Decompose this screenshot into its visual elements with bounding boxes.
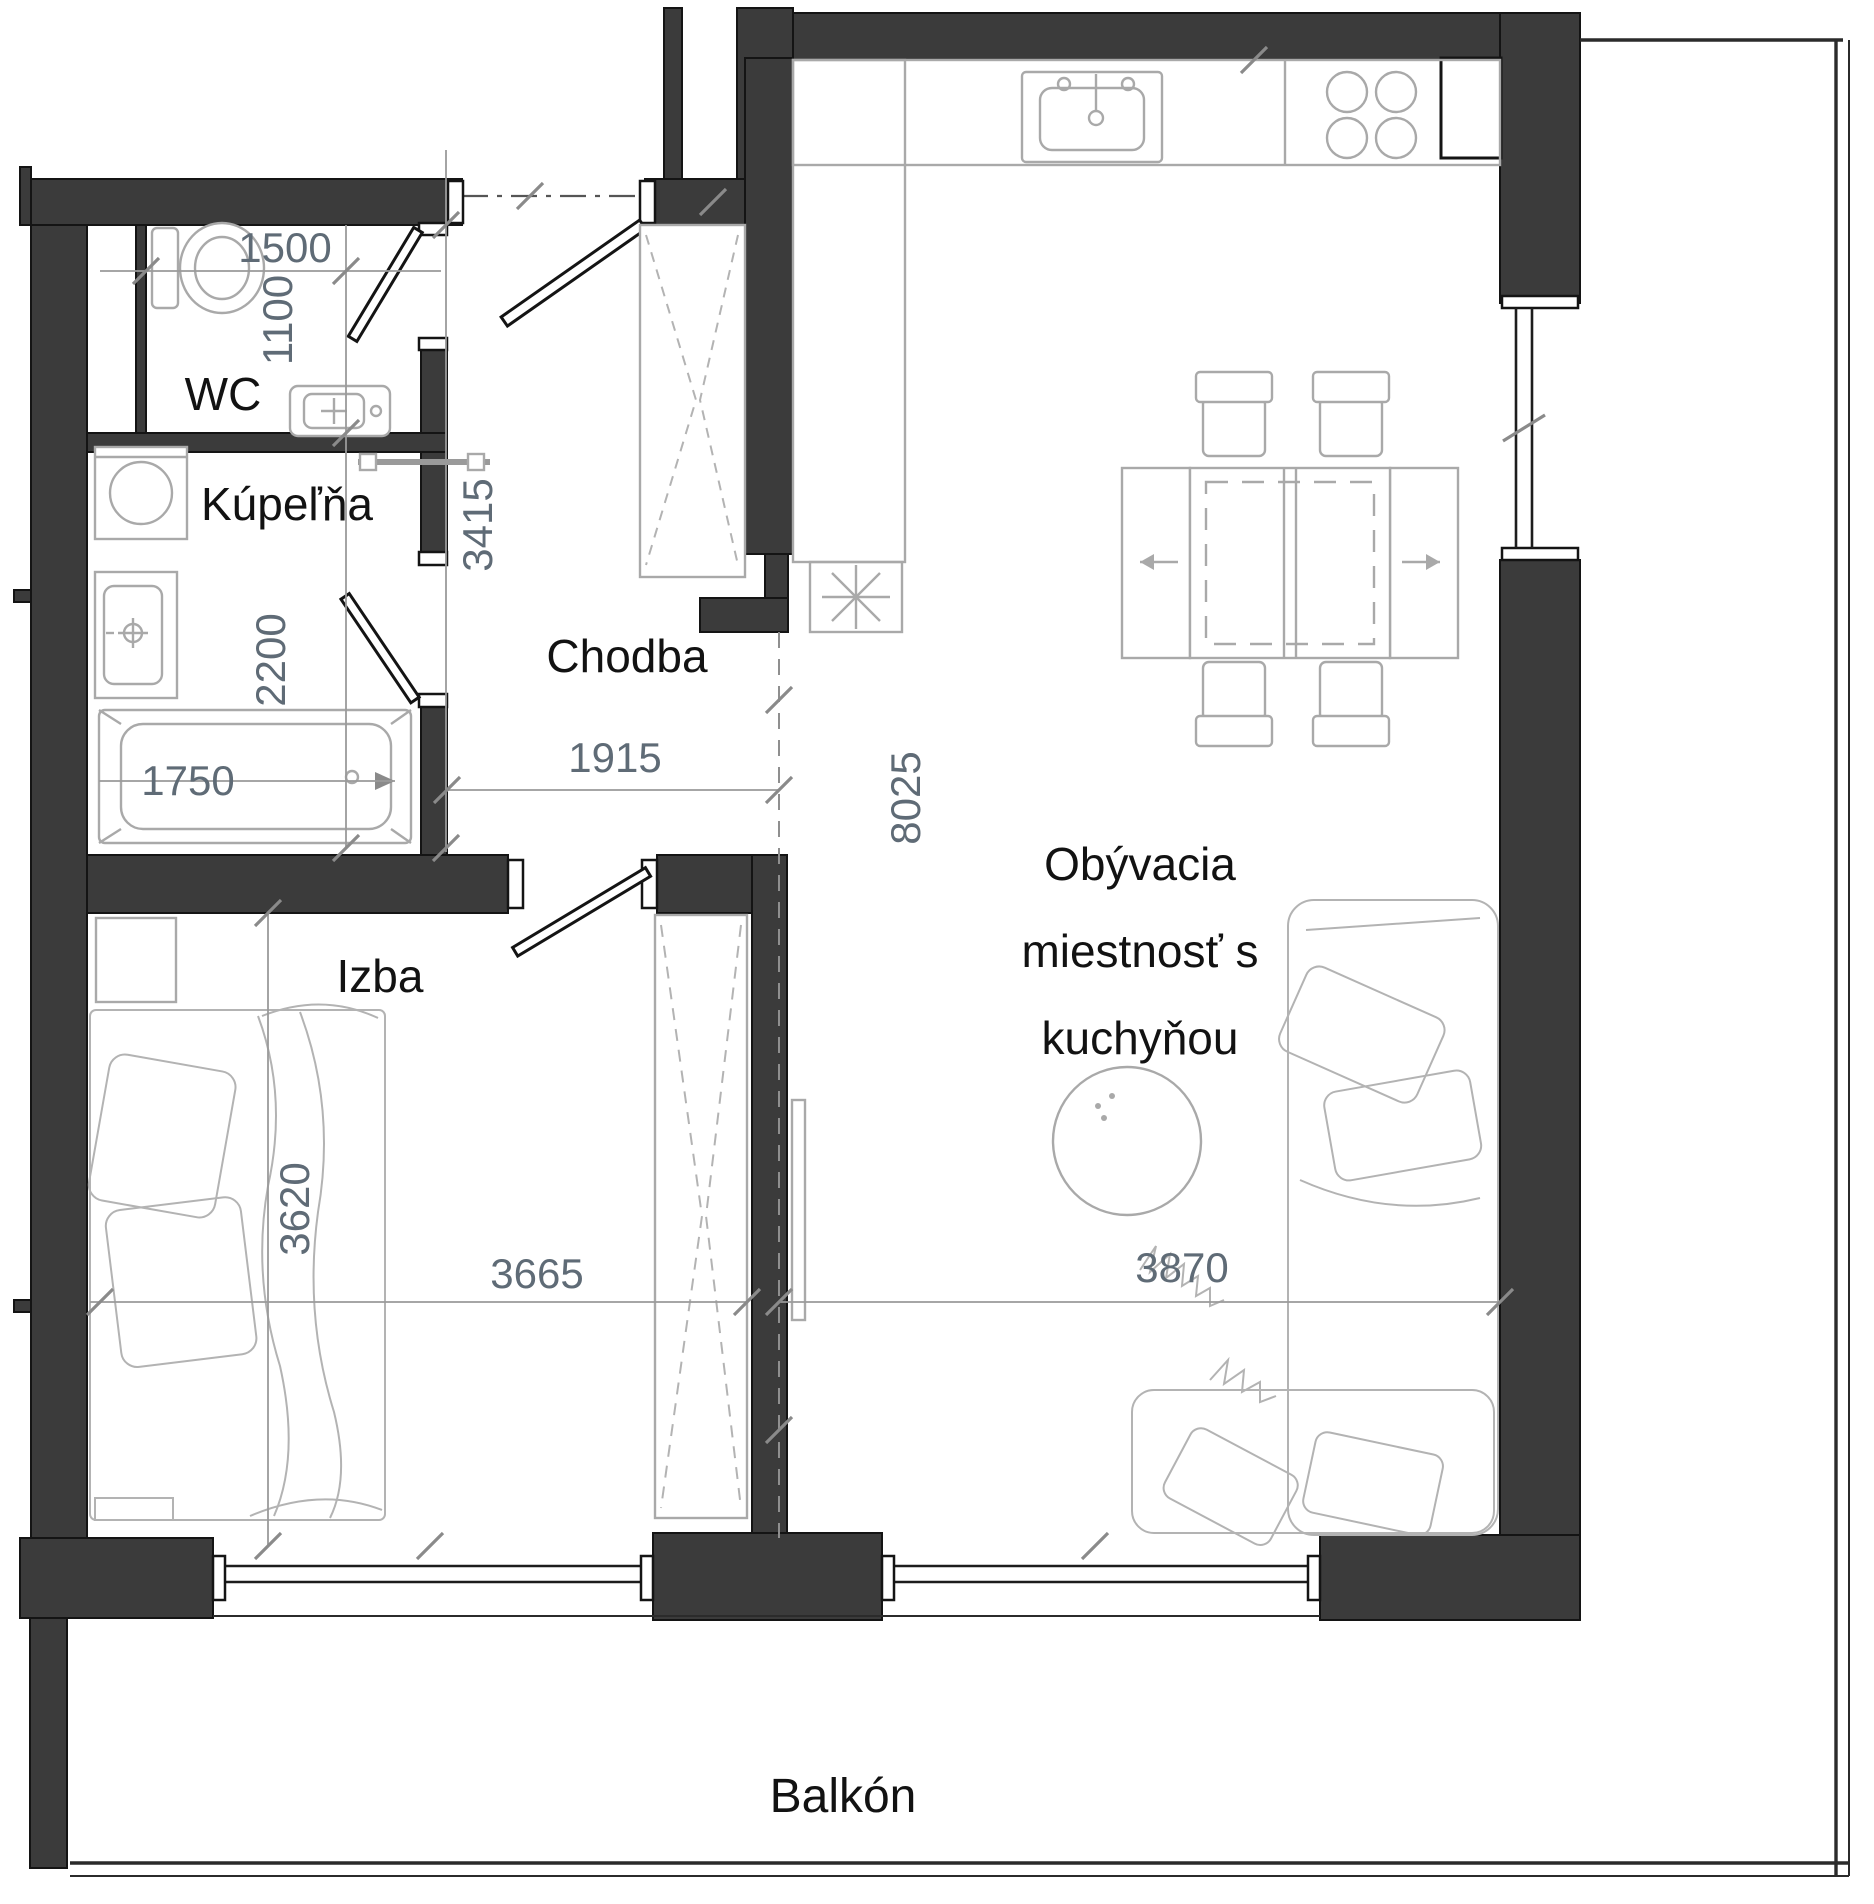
dim-wc-depth: 1100	[254, 275, 301, 365]
bed	[86, 1004, 385, 1520]
dim-bath-length: 2200	[247, 613, 294, 706]
wall-top-left	[31, 179, 462, 225]
wall-left-notch-2	[14, 1300, 31, 1312]
wall-top	[793, 13, 1507, 60]
wall-left-notch-top	[20, 167, 31, 225]
kitchen-sink	[1022, 72, 1162, 162]
dim-bedroom-width: 3665	[490, 1250, 583, 1297]
entrance-door-leaf	[501, 220, 646, 326]
balcony-pillar	[30, 1618, 67, 1868]
wall-bedroom-living-divider	[752, 855, 787, 1538]
dim-hall-width: 1915	[568, 734, 661, 781]
round-table	[1053, 1067, 1201, 1215]
wc-sink	[290, 386, 390, 436]
wall-wc-shaft	[136, 225, 146, 452]
hall-closet	[640, 225, 745, 577]
wall-left-notch-1	[14, 590, 31, 602]
wall-bottom-left-block	[20, 1538, 213, 1618]
wall-niche-left	[664, 8, 682, 183]
dim-wc-width: 1500	[238, 224, 331, 271]
label-living-1: Obývacia	[1044, 838, 1236, 890]
wall-kitchen-left	[745, 58, 793, 554]
label-living-2: miestnosť s	[1021, 925, 1258, 977]
bathroom-sink	[95, 572, 177, 698]
floor-plan: WC Kúpeľňa Chodba Izba Obývacia miestnos…	[0, 0, 1874, 1904]
dim-living-width: 3870	[1135, 1244, 1228, 1291]
cooktop	[1327, 72, 1416, 158]
washing-machine	[95, 447, 187, 539]
label-wc: WC	[185, 368, 262, 420]
wall-bedroom-top	[87, 855, 508, 913]
floor-plan-canvas: WC Kúpeľňa Chodba Izba Obývacia miestnos…	[0, 0, 1874, 1904]
label-balcony: Balkón	[770, 1770, 917, 1823]
tv-board	[792, 1100, 805, 1320]
label-bedroom: Izba	[337, 950, 424, 1002]
wall-left	[31, 179, 87, 1538]
corner-sofa	[1132, 900, 1498, 1549]
label-bathroom: Kúpeľňa	[201, 478, 373, 530]
dim-bathtub: 1750	[141, 757, 234, 804]
dim-bedroom-length: 3620	[271, 1162, 318, 1255]
bedroom-door-leaf	[513, 868, 651, 956]
wall-right	[1500, 560, 1580, 1535]
wc-door-leaf	[348, 227, 422, 341]
dining-table	[1122, 372, 1458, 746]
label-living-3: kuchyňou	[1042, 1012, 1239, 1064]
wall-top-right-block	[1500, 13, 1580, 303]
bathroom-door-leaf	[341, 594, 419, 703]
wall-bottom-center-block	[653, 1533, 882, 1620]
shaft-box	[1441, 58, 1501, 158]
wall-bath-right-lower	[421, 706, 447, 855]
bedroom-wardrobe	[655, 915, 747, 1518]
label-hallway: Chodba	[546, 630, 708, 682]
nightstand	[96, 918, 176, 1002]
dim-hall-length: 3415	[454, 478, 501, 571]
wall-bath-right-upper	[421, 452, 447, 556]
wall-kitchen-left-flange	[700, 598, 788, 632]
dim-living-length: 8025	[882, 751, 929, 844]
wall-bottom-right-block	[1320, 1535, 1580, 1620]
fridge-star	[810, 562, 902, 632]
